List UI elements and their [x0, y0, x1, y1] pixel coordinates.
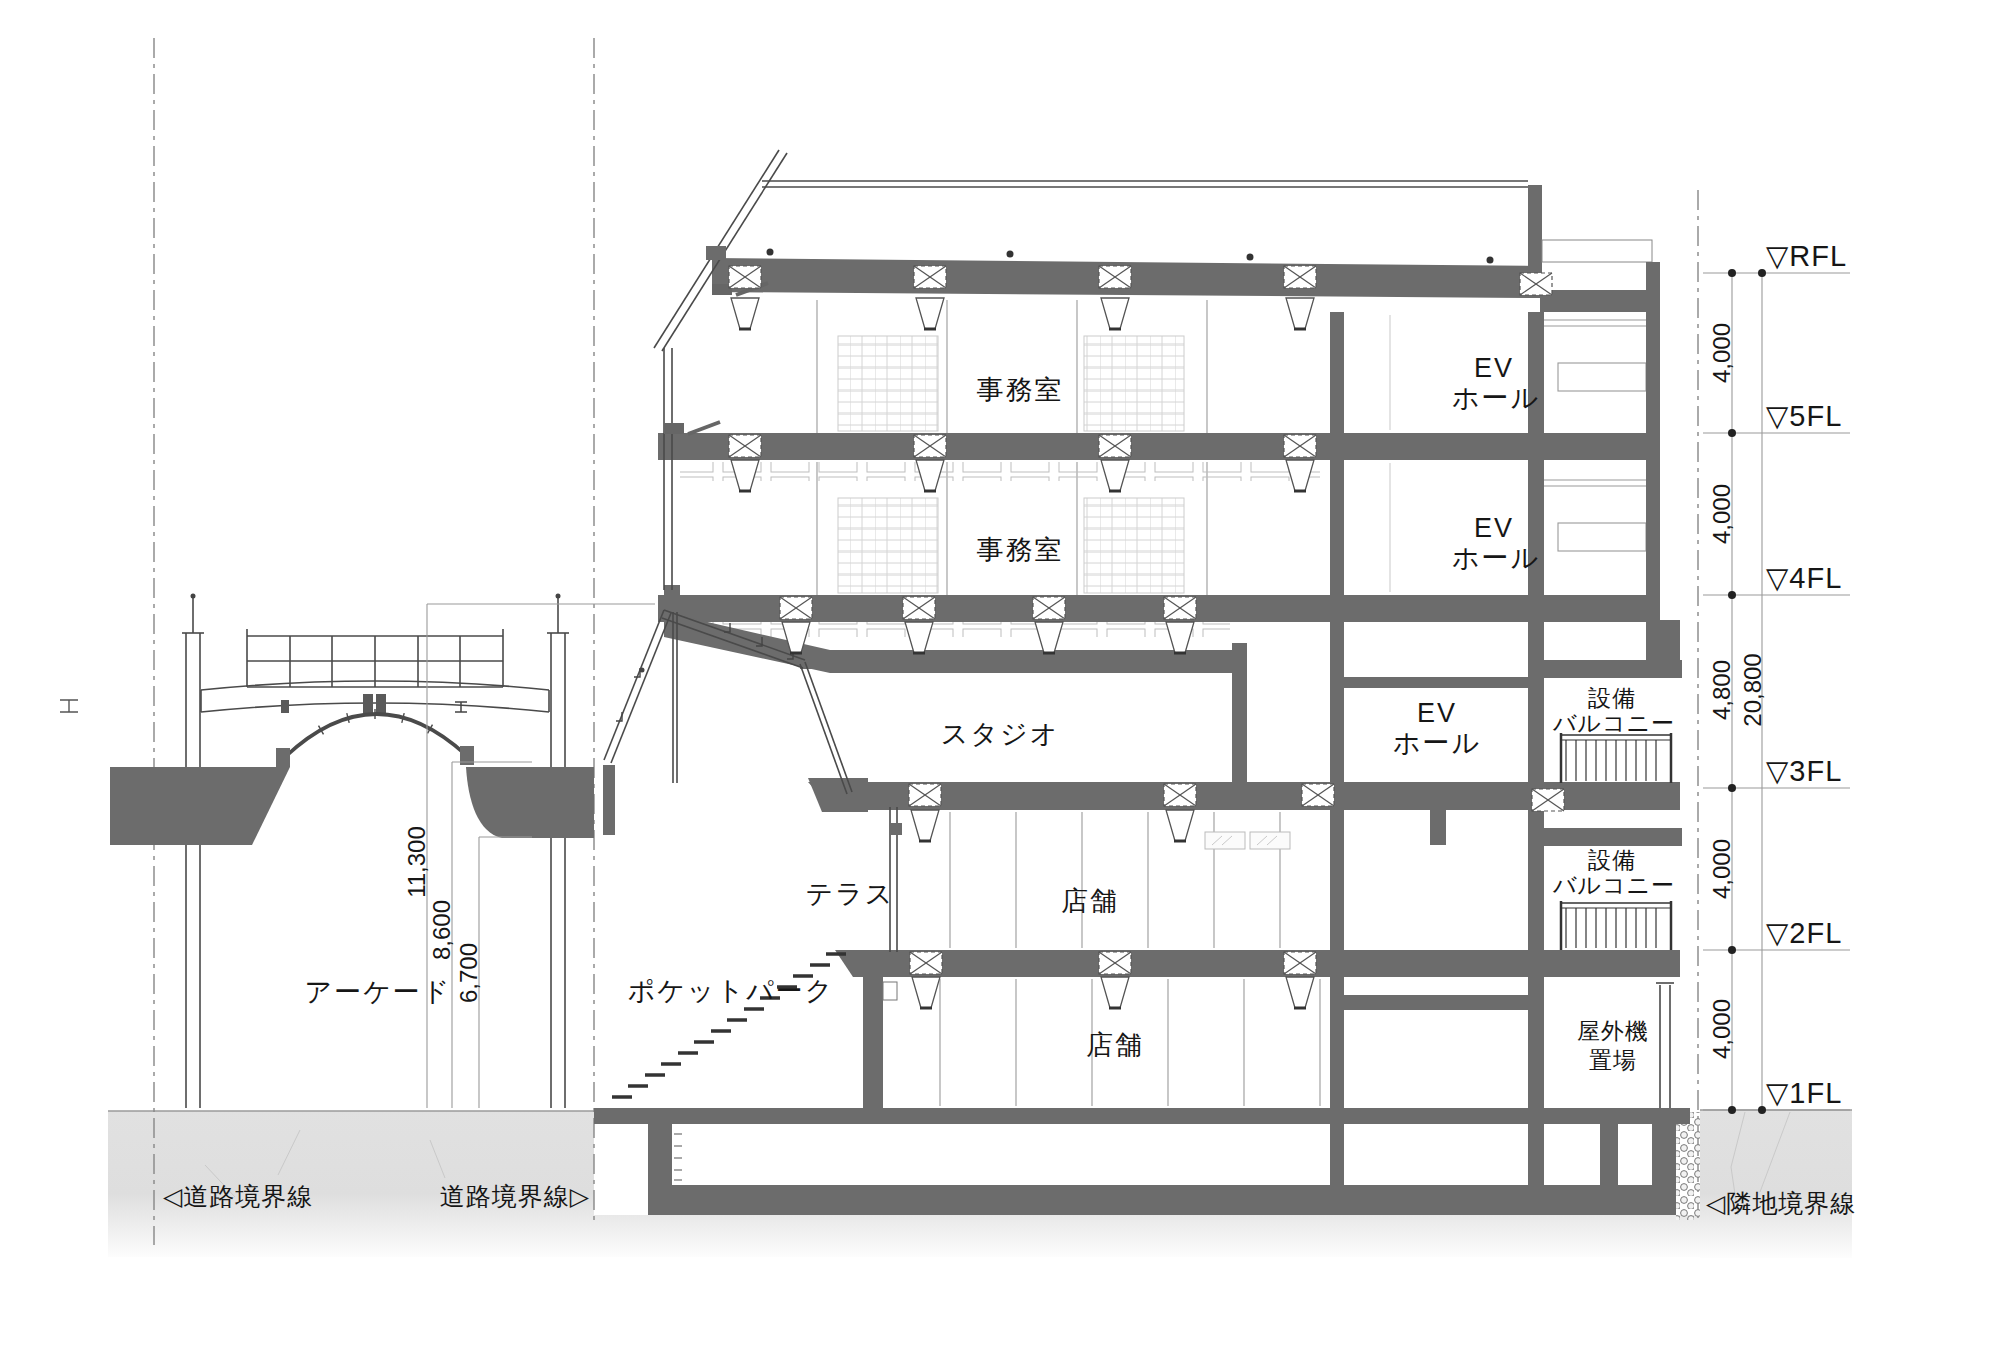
- room-label-shop-1f: 店舗: [1086, 1030, 1144, 1060]
- shop-1f-door-frame: [883, 982, 897, 1000]
- dim-arcade-6700: 6,700: [455, 943, 482, 1003]
- dim-2fl-1fl: 4,000: [1708, 999, 1735, 1059]
- ev-hall-ceiling-3f: [1344, 677, 1528, 688]
- basement-interior: [672, 1124, 1652, 1185]
- dim-4fl-3fl: 4,800: [1708, 660, 1735, 720]
- office-shelving: [1084, 498, 1184, 593]
- office-shelving: [838, 498, 938, 593]
- room-label-outdoor-line1: 屋外機: [1577, 1018, 1649, 1044]
- architectural-section-drawing: 11,300 8,600 6,700 アーケード: [0, 0, 2000, 1350]
- room-label-ev-5f-line1: EV: [1474, 353, 1514, 383]
- terrace-door-bracket: [890, 823, 902, 835]
- room-label-office-4f: 事務室: [977, 535, 1064, 565]
- studio-right-wall: [1232, 643, 1247, 783]
- slab-3fl-edge: [808, 778, 868, 812]
- slab-5fl: [658, 433, 1660, 460]
- basement-floor-slab: [648, 1185, 1676, 1215]
- room-label-studio: スタジオ: [941, 719, 1060, 749]
- room-label-equip-2f-line2: バルコニー: [1552, 872, 1675, 898]
- balcony-corner-block: [1646, 620, 1680, 678]
- room-label-outdoor-line2: 置場: [1589, 1047, 1637, 1073]
- arcade-structure: [60, 594, 594, 1109]
- room-label-ev-5f-line2: ホール: [1452, 383, 1540, 413]
- level-label-3fl: ▽3FL: [1766, 755, 1842, 787]
- slab-2fl: [835, 950, 1680, 977]
- room-label-arcade: アーケード: [305, 977, 452, 1007]
- ac-unit: [1205, 832, 1245, 849]
- right-exterior-wall: [1646, 312, 1660, 620]
- canopy-dot: [640, 668, 645, 673]
- office-shelving: [1084, 336, 1184, 431]
- room-label-office-5f: 事務室: [977, 375, 1064, 405]
- roof-block-left: [706, 246, 726, 260]
- dim-5fl-4fl: 4,000: [1708, 484, 1735, 544]
- level-label-2fl: ▽2FL: [1766, 917, 1842, 949]
- arcade-dim-lines: [427, 604, 655, 1108]
- canopy-foot-block: [560, 800, 572, 814]
- balcony-railing-3f: [1560, 733, 1672, 783]
- roof-slab-ev: [1540, 290, 1660, 312]
- room-label-equip-3f-line2: バルコニー: [1552, 710, 1675, 736]
- boundary-label-road-right: 道路境界線▷: [440, 1182, 590, 1210]
- dim-arcade-8600: 8,600: [428, 900, 455, 960]
- ac-unit: [1250, 832, 1290, 849]
- level-label-rfl: ▽RFL: [1766, 240, 1847, 272]
- dim-arcade-11300: 11,300: [403, 826, 430, 898]
- ev-shaft-wall-left: [1330, 312, 1344, 1108]
- room-label-equip-2f-line1: 設備: [1588, 847, 1636, 873]
- arch-springer-left: [276, 748, 290, 767]
- arcade-dimensions: 11,300 8,600 6,700 アーケード: [305, 604, 655, 1108]
- room-label-terrace: テラス: [806, 879, 895, 909]
- building-section: [560, 150, 1682, 1108]
- dim-rfl-5fl: 4,000: [1708, 323, 1735, 383]
- ground-floor-slab: [594, 1108, 1690, 1124]
- room-label-ev-4f-line2: ホール: [1452, 543, 1540, 573]
- ev-shaft-wall-right: [1528, 312, 1544, 1108]
- canopy-end-post: [603, 765, 615, 835]
- studio-ceiling: [830, 650, 1232, 673]
- boundary-label-adjacent: ◁隣地境界線: [1706, 1189, 1856, 1217]
- arcade-roof-mass-right: [466, 767, 594, 838]
- section-canvas: 11,300 8,600 6,700 アーケード: [0, 0, 2000, 1350]
- level-label-1fl: ▽1FL: [1766, 1077, 1842, 1109]
- level-dimension-system: 4,000 4,000 4,800 4,000 4,000 20,800 ▽RF…: [1703, 240, 1850, 1114]
- arcade-roof-mass-left: [110, 767, 290, 845]
- ceiling-unit-row: [680, 462, 1320, 481]
- arcade-arch: [285, 709, 466, 757]
- shop-1f-front-column: [863, 977, 883, 1108]
- gravel-strip: [1676, 1112, 1700, 1220]
- basement-wall-stub: [1528, 1124, 1544, 1185]
- basement-wall-stub: [1330, 1124, 1344, 1185]
- dim-total-height: 20,800: [1739, 653, 1766, 726]
- roof-parapet-right: [1646, 262, 1660, 290]
- boundary-label-road-left: ◁道路境界線: [163, 1182, 313, 1210]
- dim-3fl-2fl: 4,000: [1708, 839, 1735, 899]
- arcade-mark: [60, 700, 78, 712]
- room-label-ev-3f-line1: EV: [1417, 698, 1457, 728]
- ev-soffit-1f: [1344, 995, 1540, 1010]
- level-label-4fl: ▽4FL: [1766, 562, 1842, 594]
- arcade-post-tip: [556, 594, 561, 599]
- ground-adjacent-right: [1700, 1110, 1852, 1258]
- room-label-equip-3f-line1: 設備: [1588, 685, 1636, 711]
- basement-wall-stub: [1600, 1124, 1618, 1200]
- ev-pit-stub: [1430, 810, 1446, 845]
- basement: [648, 1112, 1700, 1220]
- level-label-5fl: ▽5FL: [1766, 400, 1842, 432]
- room-label-ev-3f-line2: ホール: [1393, 728, 1481, 758]
- arcade-roof-railing-grid: [247, 629, 503, 687]
- balcony-header-2f: [1544, 828, 1682, 846]
- balcony-railing-2f: [1560, 901, 1672, 950]
- arcade-post-tip: [191, 594, 196, 599]
- office-shelving: [838, 336, 938, 431]
- room-label-ev-4f-line1: EV: [1474, 513, 1514, 543]
- roof-coping: [1542, 240, 1652, 262]
- ground-below-basement: [594, 1215, 1700, 1257]
- room-label-shop-2f: 店舗: [1061, 886, 1119, 916]
- room-label-pocket-park: ポケットパーク: [628, 976, 835, 1006]
